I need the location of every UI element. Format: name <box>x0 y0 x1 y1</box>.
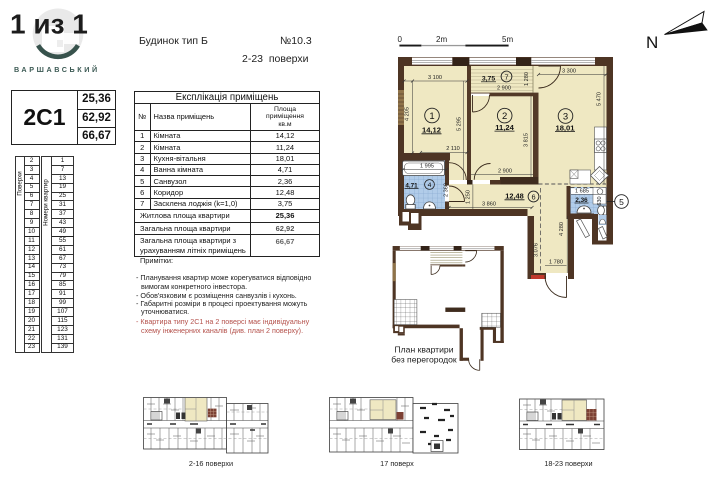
svg-text:18,01: 18,01 <box>555 123 575 132</box>
svg-text:4: 4 <box>428 182 432 189</box>
svg-text:2: 2 <box>502 111 507 122</box>
svg-text:2-16 поверхи: 2-16 поверхи <box>189 459 233 468</box>
svg-text:2 110: 2 110 <box>446 146 460 152</box>
svg-text:2 900: 2 900 <box>498 168 512 174</box>
svg-text:3: 3 <box>563 112 568 123</box>
svg-text:18-23 поверхи: 18-23 поверхи <box>544 459 592 468</box>
svg-text:14,12: 14,12 <box>422 126 441 135</box>
svg-text:2 360: 2 360 <box>444 183 450 197</box>
svg-text:5 295: 5 295 <box>457 117 463 131</box>
svg-text:3.076: 3.076 <box>534 243 540 257</box>
svg-text:1 280: 1 280 <box>524 72 530 86</box>
svg-text:0: 0 <box>398 35 403 44</box>
svg-text:3 100: 3 100 <box>428 75 442 81</box>
svg-text:12,48: 12,48 <box>505 192 524 201</box>
svg-text:1 995: 1 995 <box>420 163 434 169</box>
svg-text:без перегородок: без перегородок <box>391 355 457 365</box>
svg-text:4 205: 4 205 <box>405 107 411 121</box>
svg-text:2 900: 2 900 <box>497 86 511 92</box>
svg-text:3 815: 3 815 <box>523 133 529 147</box>
svg-text:17 поверх: 17 поверх <box>380 459 414 468</box>
svg-text:N: N <box>646 33 658 52</box>
svg-text:5: 5 <box>619 197 624 207</box>
svg-text:7: 7 <box>504 72 508 81</box>
svg-text:1 685: 1 685 <box>575 189 589 195</box>
svg-text:4 280: 4 280 <box>559 222 565 236</box>
svg-text:1: 1 <box>429 111 434 122</box>
svg-text:3 300: 3 300 <box>562 68 576 74</box>
svg-text:2m: 2m <box>436 35 447 44</box>
svg-text:11,24: 11,24 <box>495 123 514 132</box>
svg-text:План квартири: План квартири <box>394 345 453 355</box>
svg-text:6: 6 <box>531 192 535 201</box>
svg-text:5m: 5m <box>502 35 513 44</box>
svg-text:3 860: 3 860 <box>482 201 496 207</box>
svg-text:1 250: 1 250 <box>465 190 471 204</box>
svg-text:3,75: 3,75 <box>482 76 495 83</box>
svg-text:5 470: 5 470 <box>596 92 602 106</box>
svg-text:630: 630 <box>597 196 603 205</box>
svg-text:1 780: 1 780 <box>549 259 563 265</box>
